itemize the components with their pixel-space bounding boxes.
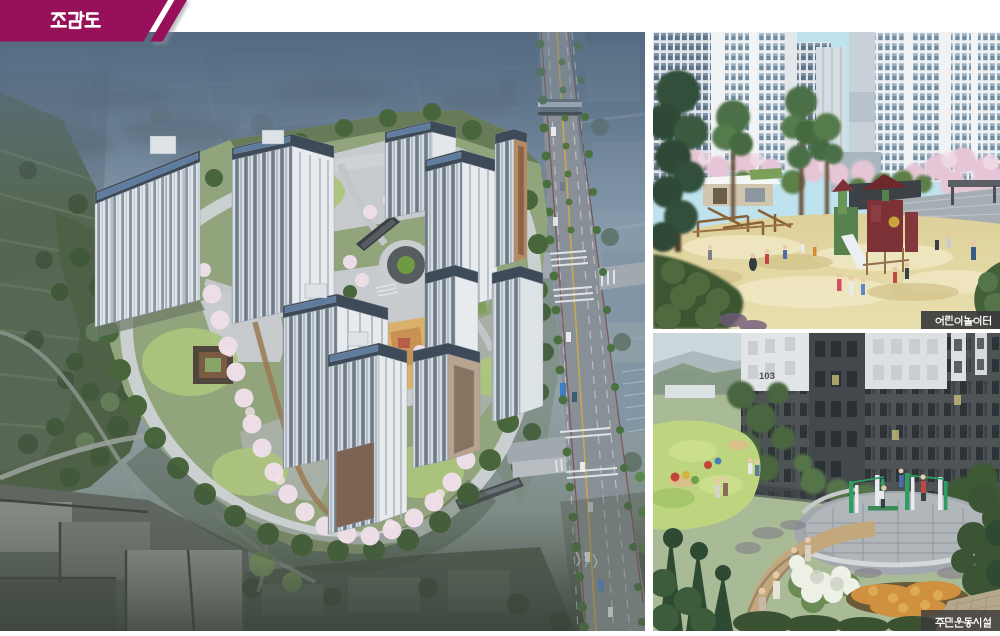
svg-text:103: 103 bbox=[759, 371, 775, 382]
